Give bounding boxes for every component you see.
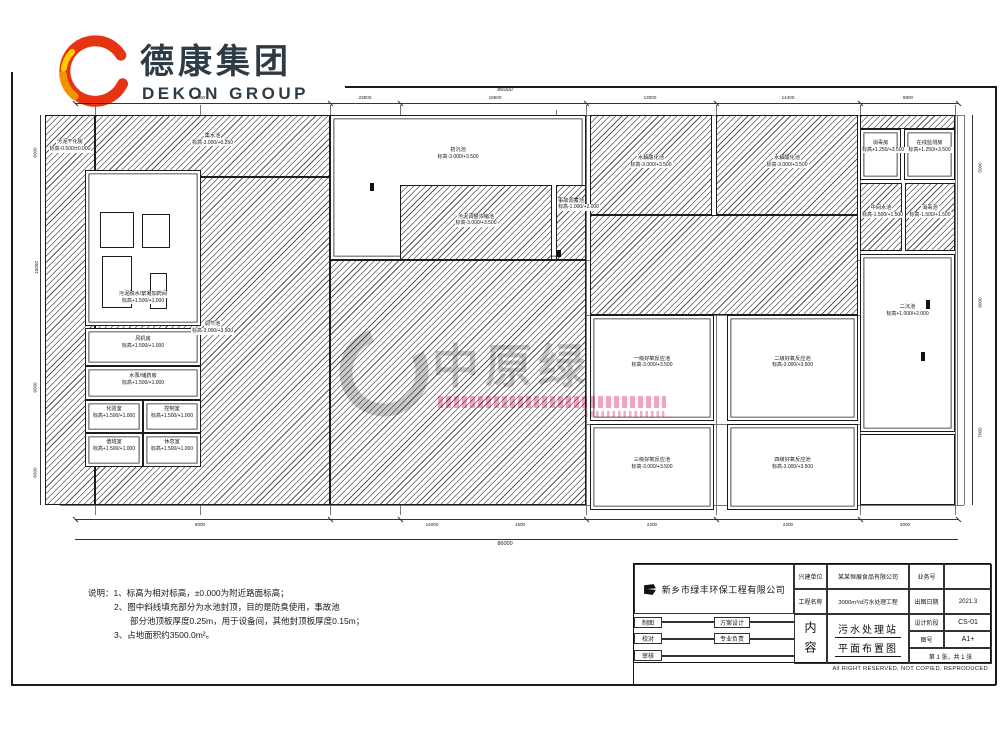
grid-line-v	[586, 105, 587, 515]
plan-mark	[370, 183, 374, 191]
tank-label: 污泥脱水/絮凝加药间标高+1.500/+1.000	[86, 291, 200, 304]
scheme-value	[750, 621, 794, 623]
sheet-number: 第 1 张，共 1 张	[909, 648, 992, 664]
tank-label: 三级好氧反应池标高-3.000/+3.500	[591, 457, 713, 470]
tank-region: 二级好氧反应池标高-3.000/+3.500	[727, 315, 858, 421]
tank-region: 控制室标高+1.500/+1.000	[143, 400, 201, 433]
company-cell: 新乡市绿丰环保工程有限公司	[634, 564, 794, 614]
tank-label: 在线监测房标高+1.250/+3.500	[905, 140, 954, 153]
dim-number: 2200	[783, 522, 793, 527]
tank-region: 污泥调整浓缩池标高-3.000/+3.500	[400, 185, 552, 260]
dim-number: 13000	[644, 95, 657, 100]
blank-cell	[714, 655, 750, 657]
scheme-label: 方案设计	[714, 617, 750, 628]
dim-line-top	[75, 103, 958, 104]
tank-label: 休息室标高+1.500/+1.000	[144, 439, 200, 452]
stage-label: 设计阶段	[909, 614, 944, 631]
grid-line-v	[955, 105, 956, 515]
tank-label: 调节池标高-3.000/+3.500	[96, 321, 329, 334]
plan-region	[330, 260, 586, 505]
grid-line-v	[957, 115, 958, 505]
tank-region: 水解酸化池标高-3.000/+3.500	[716, 115, 858, 215]
tank-region: 中间水池标高-1.500/+1.500	[860, 183, 902, 251]
dim-number: 18600	[489, 95, 502, 100]
tank-label: 值班室标高+1.500/+1.000	[86, 439, 142, 452]
plan-mark	[921, 352, 925, 361]
dim-number: 8000	[195, 95, 205, 100]
lead-label: 专业负责	[714, 633, 750, 644]
date-value: 2021.3	[944, 589, 992, 614]
tank-label: 污泥调整浓缩池标高-3.000/+3.500	[401, 214, 551, 227]
tank-label: 事故调蓄池标高-1.000/+2.000	[557, 198, 585, 211]
copyright-text: All RIGHT RESERVED, NOT COPIED, REPRODUC…	[633, 666, 988, 672]
dim-line-left	[40, 115, 41, 505]
check-value	[662, 638, 714, 640]
review-value	[662, 655, 714, 657]
check-label: 校对	[634, 633, 662, 644]
date-label: 出图日期	[909, 589, 944, 614]
grid-line-v	[964, 115, 965, 505]
dim-number: 8000	[195, 522, 205, 527]
dim-total-top: 86000	[497, 87, 512, 93]
dim-number: 23500	[359, 95, 372, 100]
tank-label: 消毒池标高-1.500/+1.500	[906, 205, 954, 218]
dim-number: 14400	[782, 95, 795, 100]
notes-text: 说明：1、标高为相对标高，±0.000为附近路面标高；2、图中斜线填充部分为水池…	[88, 586, 448, 642]
plan-region	[590, 215, 858, 315]
tank-region: 消毒房标高+1.250/+3.500	[860, 129, 901, 180]
stage-value: CS-01	[944, 614, 992, 631]
dim-number: 15000	[34, 261, 39, 274]
tank-label: 风机房标高+1.500/+1.000	[86, 336, 200, 349]
owner-label: 兴建单位	[794, 564, 827, 589]
tank-region: 水解酸化池标高-3.000/+3.500	[590, 115, 712, 215]
drawing-title-line1: 污水处理站	[835, 621, 901, 638]
content-cell: 污水处理站 平面布置图	[827, 614, 909, 664]
tank-label: 一级好氧反应池标高-3.000/+3.500	[591, 356, 713, 369]
title-block: 新乡市绿丰环保工程有限公司 兴建单位 某某恒展食品有限公司 业务号 工程名称 3…	[633, 563, 991, 663]
tank-region: 休息室标高+1.500/+1.000	[143, 433, 201, 467]
plan-mark	[556, 250, 561, 257]
dim-number: 3000	[900, 522, 910, 527]
figno-label: 图号	[909, 631, 944, 648]
dim-number: 6000	[33, 147, 38, 157]
equipment-rect	[100, 212, 134, 248]
tank-label: 二沉池标高+1.000/+2.000	[861, 304, 954, 317]
draft-value	[662, 621, 714, 623]
dim-tick	[956, 516, 962, 522]
tank-region: 消毒池标高-1.500/+1.500	[905, 183, 955, 251]
dim-number: 2200	[647, 522, 657, 527]
dim-number: 9000	[33, 382, 38, 392]
company-name: 新乡市绿丰环保工程有限公司	[662, 583, 786, 596]
signatures-grid: 制图 方案设计 校对 专业负责 审核	[634, 614, 794, 664]
dim-number: 1500	[515, 522, 525, 527]
tank-region: 在线监测房标高+1.250/+3.500	[904, 129, 955, 180]
project-label: 工程名称	[794, 589, 827, 614]
figno-value: A1+	[944, 631, 992, 648]
tank-region: 一级好氧反应池标高-3.000/+3.500	[590, 315, 714, 421]
tank-label: 四级好氧反应池标高-3.000/+3.500	[728, 457, 857, 470]
dim-number: 8000	[978, 297, 983, 307]
tank-label: 水解酸化池标高-3.000/+3.500	[717, 155, 857, 168]
tank-label: 控制室标高+1.500/+1.000	[144, 406, 200, 419]
dim-number: 14000	[426, 522, 439, 527]
owner-value: 某某恒展食品有限公司	[827, 564, 909, 589]
tank-label: 水泵/储药房标高+1.500/+1.000	[86, 373, 200, 386]
lead-value	[750, 638, 794, 640]
tank-region: 三级好氧反应池标高-3.000/+3.500	[590, 424, 714, 510]
blank-cell	[750, 655, 794, 657]
tank-region: 化验室标高+1.500/+1.000	[85, 400, 143, 433]
dim-line-right	[972, 115, 973, 505]
tank-region: 污泥脱水/絮凝加药间标高+1.500/+1.000	[85, 170, 201, 326]
dim-number: 5000	[978, 162, 983, 172]
note-line: 2、图中斜线填充部分为水池封顶，目的是防臭使用，事故池	[88, 600, 448, 614]
company-logo-icon	[643, 583, 658, 596]
equipment-rect	[142, 214, 170, 248]
tank-label: 水解酸化池标高-3.000/+3.500	[591, 155, 711, 168]
review-label: 审核	[634, 650, 662, 661]
tank-label: 二级好氧反应池标高-3.000/+3.500	[728, 356, 857, 369]
content-label: 内容	[794, 614, 827, 664]
biz-value	[944, 564, 992, 589]
tank-region: 值班室标高+1.500/+1.000	[85, 433, 143, 467]
tank-label: 初沉池标高-3.000/+3.500	[331, 147, 585, 160]
dim-number: 7000	[978, 427, 983, 437]
dim-line-bottom	[75, 519, 958, 520]
note-line: 说明：1、标高为相对标高，±0.000为附近路面标高；	[88, 586, 448, 600]
note-line: 3、占地面积约3500.0m²。	[88, 628, 448, 642]
dim-line-bottom-total	[75, 539, 958, 540]
biz-label: 业务号	[909, 564, 944, 589]
project-value: 3000m³/d污水处理工程	[827, 589, 909, 614]
dim-number: 9800	[903, 95, 913, 100]
plan-region	[860, 434, 955, 505]
tank-label: 污泥干化房标高-0.500/±0.000	[46, 139, 94, 152]
tank-label: 集水池标高-3.000/+0.250	[96, 133, 329, 146]
tank-region: 水泵/储药房标高+1.500/+1.000	[85, 366, 201, 400]
drawing-title-line2: 平面布置图	[835, 640, 901, 657]
tank-region: 事故调蓄池标高-1.000/+2.000	[556, 185, 586, 260]
note-line: 部分池顶板厚度0.25m，用于设备间，其他封顶板厚度0.15m；	[88, 614, 448, 628]
dim-number: 6500	[33, 467, 38, 477]
tank-region: 二沉池标高+1.000/+2.000	[860, 254, 955, 432]
tank-label: 中间水池标高-1.500/+1.500	[861, 205, 901, 218]
dim-tick	[956, 100, 962, 106]
plan-region	[860, 115, 955, 129]
tank-region: 集水池标高-3.000/+0.250	[95, 115, 330, 177]
tank-label: 消毒房标高+1.250/+3.500	[861, 140, 900, 153]
dim-total-bottom: 86000	[497, 541, 512, 547]
tank-region: 四级好氧反应池标高-3.000/+3.500	[727, 424, 858, 510]
draft-label: 制图	[634, 617, 662, 628]
tank-label: 化验室标高+1.500/+1.000	[86, 406, 142, 419]
